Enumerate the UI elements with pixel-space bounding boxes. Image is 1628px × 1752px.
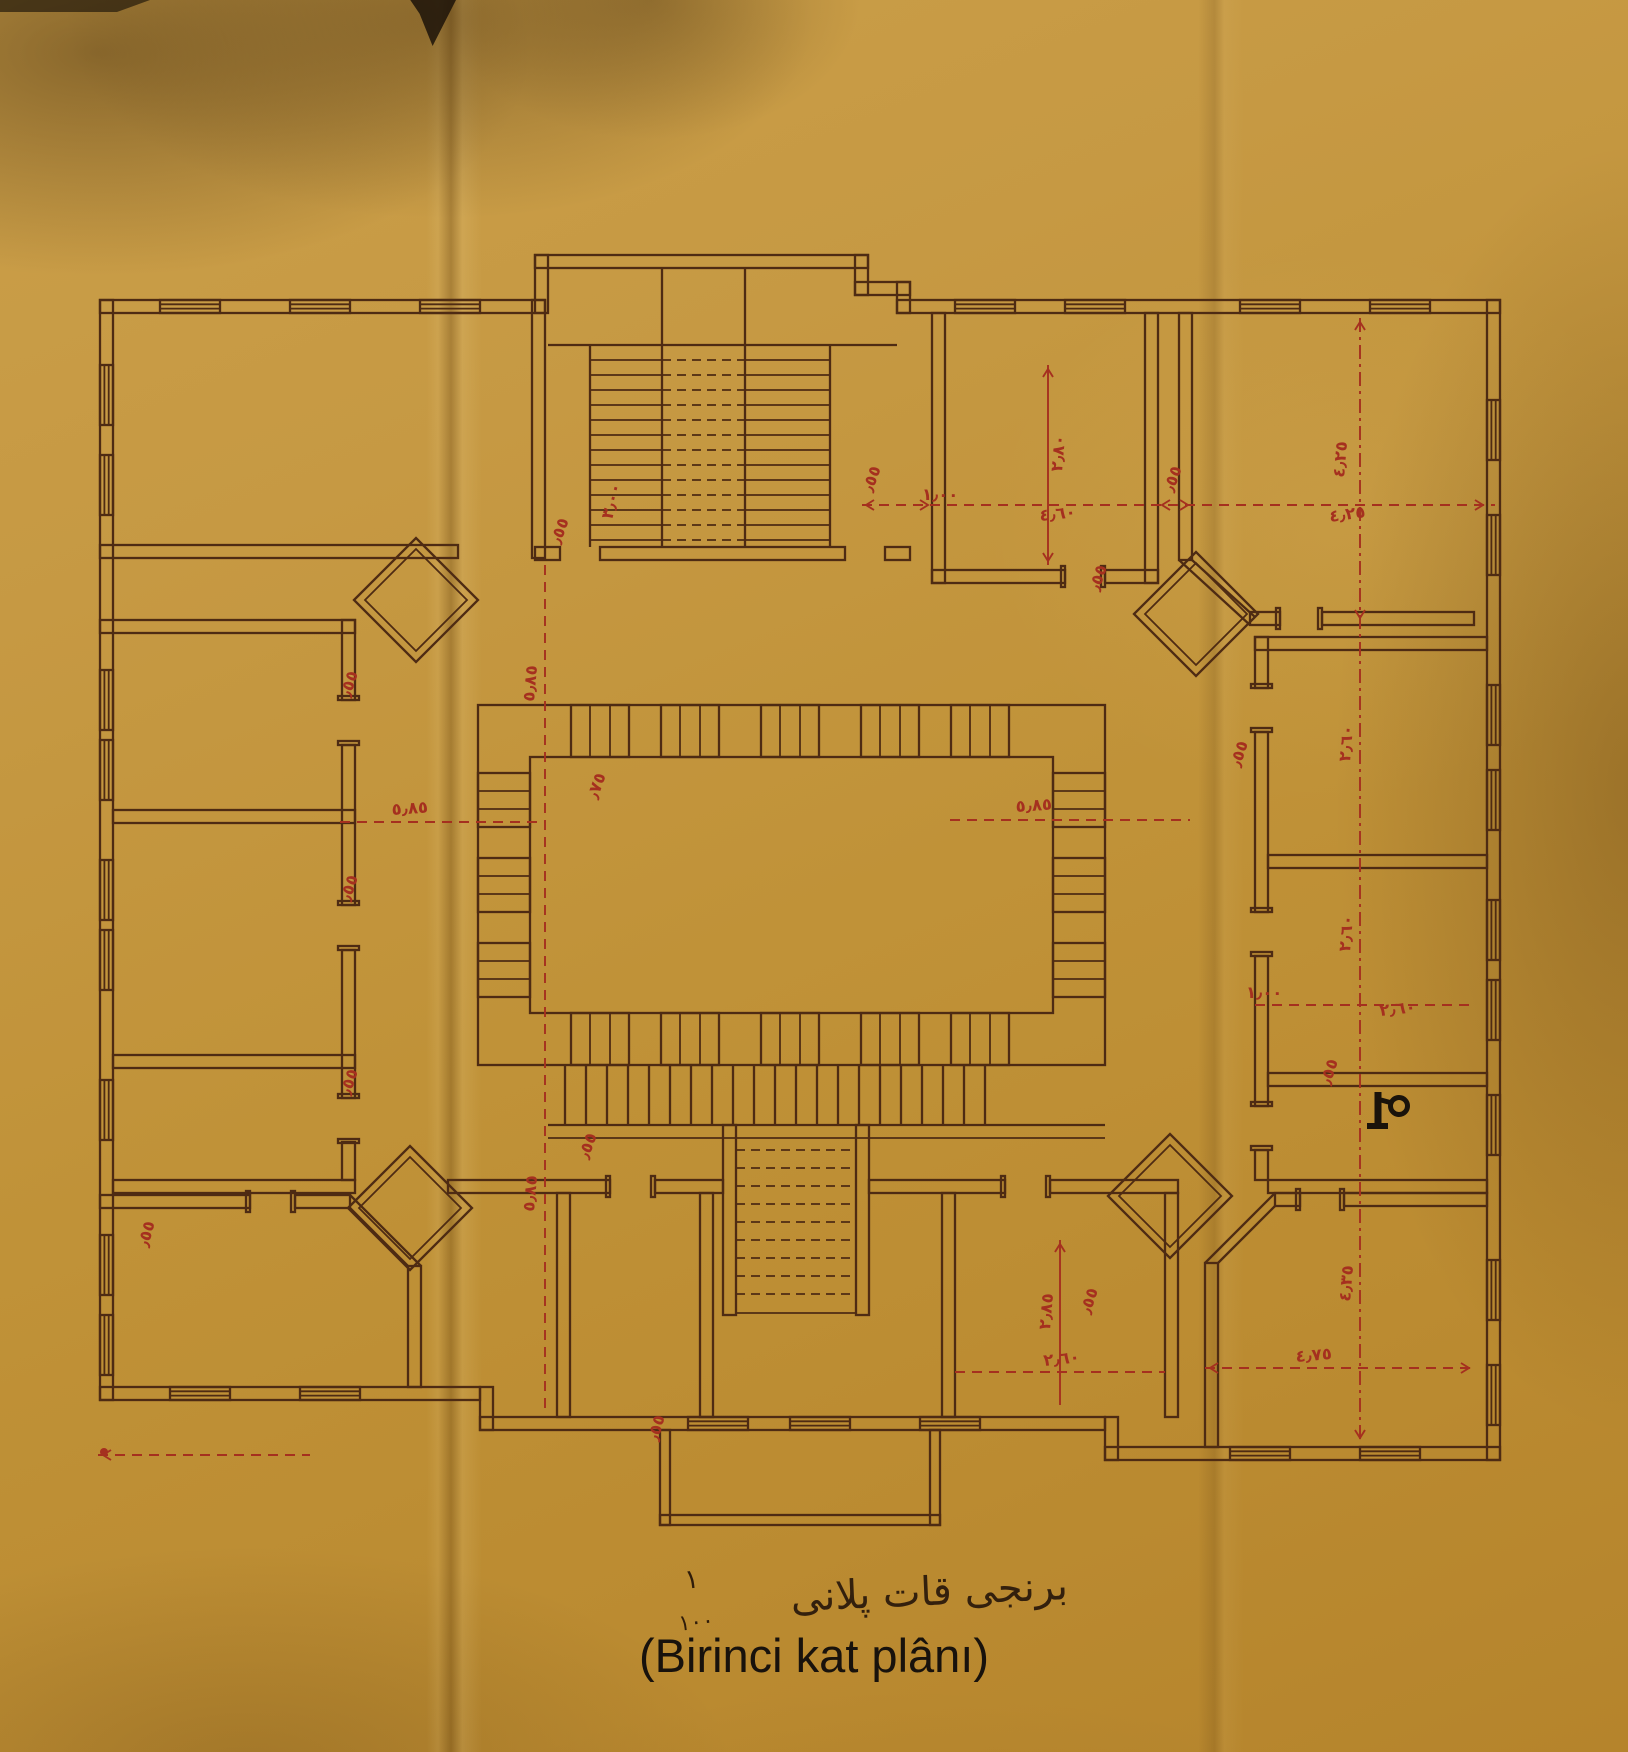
dimension-label: ٥٫٨٥	[391, 797, 429, 818]
central-hall	[478, 705, 1105, 1065]
dimension-label: ٤٫٣٥	[1335, 1264, 1357, 1302]
dimension-label: ١٫٠٠	[1246, 983, 1282, 1002]
corridor-junction-tl	[354, 538, 478, 662]
dimension-label: ٥٫٨٥	[1015, 794, 1053, 815]
fraction-bar	[693, 1589, 695, 1611]
dimension-label: ٫٥٥	[1076, 1285, 1102, 1316]
latin-caption: (Birinci kat plânı)	[14, 1628, 1614, 1683]
room-bottom-right	[1205, 1189, 1487, 1447]
dimension-label: ٤٫٦٠	[1038, 502, 1076, 525]
dimension-label: ٫٥٥	[336, 668, 362, 699]
windows	[100, 300, 1500, 1460]
corridor-junction-bl	[348, 1146, 472, 1270]
dimension-label: ٤٫٧٥	[1295, 1344, 1333, 1366]
top-staircase	[535, 268, 910, 560]
dimension-label: ٫٥٥	[1085, 562, 1111, 593]
colonnade	[548, 1065, 1105, 1138]
dimension-label: ٫٥٥	[1159, 463, 1186, 494]
dimension-label: ٫٧٥	[583, 770, 610, 801]
scale-numerator: ١	[665, 1565, 719, 1594]
dimension-labels: ٣٫٠٠٫٥٥١٫٠٠٫٥٥٤٫٦٠٢٫٨٠٫٥٥٤٫٢٥٤٫٢٥٥٫٨٥٥٫٨…	[134, 434, 1417, 1443]
dimension-label: ٥٫٨٥	[519, 1174, 541, 1212]
scale-fraction: ١ ١٠٠	[665, 1565, 724, 1637]
dimension-label: ٣٫٠٠	[598, 481, 626, 521]
floor-plan-drawing: ٣٫٠٠٫٥٥١٫٠٠٫٥٥٤٫٦٠٢٫٨٠٫٥٥٤٫٢٥٤٫٢٥٥٫٨٥٥٫٨…	[0, 0, 1628, 1752]
dimension-label: ١٫٠٠	[922, 485, 958, 504]
dimension-label: ٢٫٦٠	[1335, 914, 1357, 952]
dimension-label: ٫٥٥	[336, 872, 362, 903]
scanned-plan-page: ٣٫٠٠٫٥٥١٫٠٠٫٥٥٤٫٦٠٢٫٨٠٫٥٥٤٫٢٥٤٫٢٥٥٫٨٥٥٫٨…	[0, 0, 1628, 1752]
rooms-right-wing	[1251, 637, 1487, 1193]
rooms-left-wing	[100, 620, 359, 1193]
corridor-junction-br	[1108, 1134, 1232, 1258]
stair-treads-middle-dashed	[662, 360, 745, 540]
dimension-label: ٤٫٢٥	[1329, 440, 1351, 478]
room-mid-top	[932, 313, 1158, 587]
dimension-lines	[98, 318, 1495, 1460]
dimension-label: ٫٥٥	[858, 463, 885, 494]
dimension-label: ٫٥٥	[336, 1066, 362, 1097]
dimension-label: ٥٫٨٥	[519, 664, 541, 702]
room-top-right	[1179, 313, 1474, 629]
ink-stamp	[1367, 1092, 1408, 1126]
dimension-label: ٢٫٦٠	[1335, 724, 1357, 762]
dimension-label: ٫٥٥	[574, 1130, 601, 1161]
dimension-label: ٢٫٨٠	[1047, 434, 1069, 472]
dimension-label: ٢٫٨٥	[1035, 1292, 1057, 1330]
dimension-label: ٫٥٥	[134, 1219, 159, 1249]
dimension-label: ٫٥٥	[1226, 738, 1252, 769]
dimension-label: ٢٫٦٠	[1378, 997, 1416, 1020]
stair-treads-right	[745, 360, 830, 540]
dimension-label: ٫٥٥	[1316, 1056, 1342, 1087]
bottom-corridor-and-rooms	[448, 1176, 1178, 1417]
lower-staircase	[723, 1125, 869, 1315]
room-bottom-left	[100, 1191, 421, 1387]
room-top-left	[100, 300, 545, 558]
bottom-porch	[660, 1430, 940, 1525]
dimension-label: ٢٫٦٠	[1042, 1347, 1080, 1370]
dimension-label: ٫٥٥	[546, 515, 573, 546]
dimension-label: ٤٫٢٥	[1328, 502, 1367, 526]
